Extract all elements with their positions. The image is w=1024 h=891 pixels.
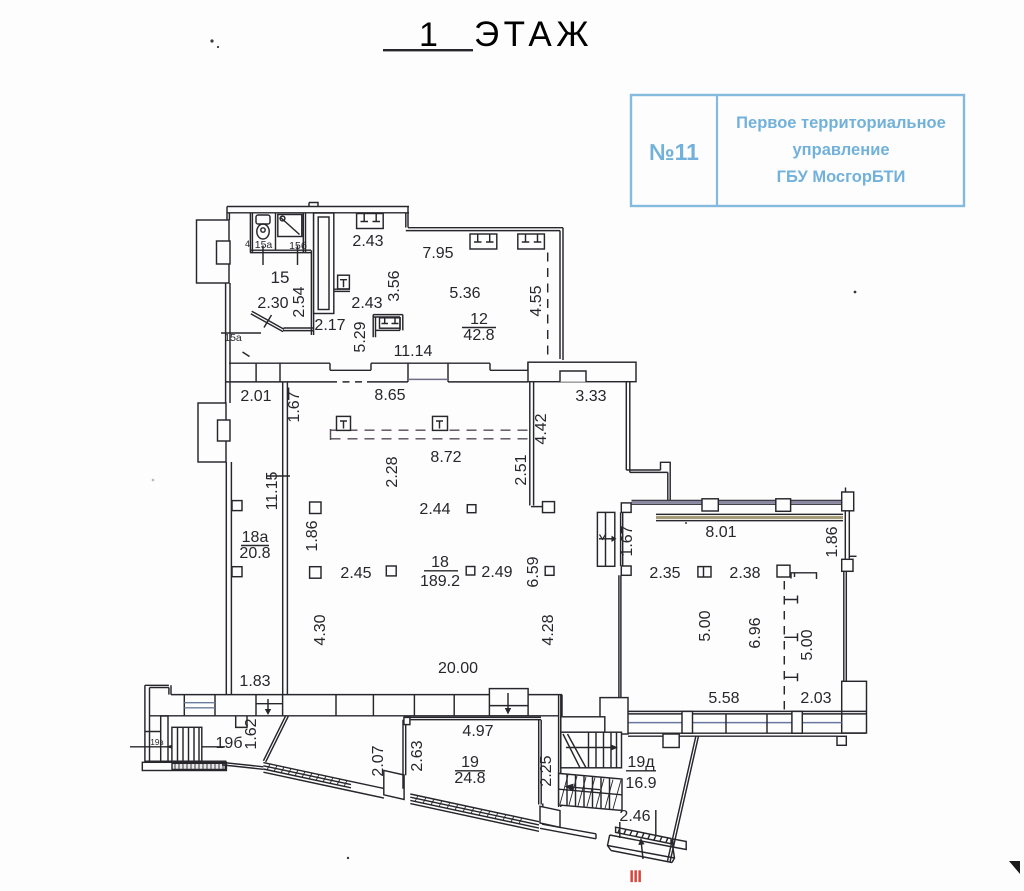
- svg-text:2.03: 2.03: [800, 690, 831, 707]
- svg-text:2.49: 2.49: [481, 564, 512, 581]
- svg-text:16.9: 16.9: [625, 775, 656, 792]
- svg-text:ЭТАЖ: ЭТАЖ: [474, 15, 593, 54]
- svg-text:1.67: 1.67: [619, 525, 636, 556]
- svg-text:4.28: 4.28: [540, 614, 557, 645]
- svg-text:2.38: 2.38: [729, 565, 760, 582]
- svg-text:8.01: 8.01: [705, 524, 736, 541]
- svg-text:11.15: 11.15: [264, 471, 281, 510]
- svg-text:1.86: 1.86: [304, 520, 321, 551]
- svg-text:4.97: 4.97: [462, 723, 493, 740]
- svg-text:2.43: 2.43: [352, 233, 383, 250]
- svg-text:2.01: 2.01: [240, 388, 271, 405]
- svg-text:2.43: 2.43: [351, 295, 382, 312]
- svg-text:20.8: 20.8: [239, 545, 270, 562]
- svg-text:5.29: 5.29: [352, 321, 369, 352]
- svg-text:8.72: 8.72: [430, 449, 461, 466]
- svg-text:15: 15: [271, 268, 290, 287]
- svg-text:5.00: 5.00: [697, 610, 714, 641]
- svg-text:5.00: 5.00: [799, 629, 816, 660]
- svg-text:2.07: 2.07: [370, 745, 387, 776]
- svg-text:19в: 19в: [150, 738, 163, 747]
- svg-text:4.30: 4.30: [312, 614, 329, 645]
- svg-text:24.8: 24.8: [454, 770, 485, 787]
- svg-text:4.42: 4.42: [533, 413, 550, 444]
- svg-text:2.54: 2.54: [291, 286, 308, 317]
- svg-text:№11: №11: [649, 139, 699, 165]
- svg-text:5.36: 5.36: [449, 285, 480, 302]
- svg-text:1.83: 1.83: [239, 673, 270, 690]
- svg-text:8.65: 8.65: [374, 387, 405, 404]
- svg-text:ГБУ МосгорБТИ: ГБУ МосгорБТИ: [777, 168, 906, 186]
- svg-text:42.8: 42.8: [463, 327, 494, 344]
- svg-text:1.62: 1.62: [243, 718, 260, 749]
- svg-text:2.51: 2.51: [513, 454, 530, 485]
- svg-text:18: 18: [431, 554, 449, 571]
- svg-text:11.14: 11.14: [394, 343, 433, 360]
- svg-text:18а: 18а: [242, 529, 269, 546]
- svg-text:2.44: 2.44: [419, 501, 450, 518]
- svg-text:2.30: 2.30: [257, 295, 288, 312]
- svg-text:3.56: 3.56: [386, 270, 403, 301]
- svg-text:6.96: 6.96: [747, 617, 764, 648]
- svg-text:2.25: 2.25: [538, 755, 555, 786]
- svg-text:4: 4: [245, 239, 250, 249]
- svg-text:2.28: 2.28: [384, 456, 401, 487]
- svg-text:7.95: 7.95: [422, 245, 453, 262]
- svg-text:2.63: 2.63: [409, 740, 426, 771]
- svg-text:2.17: 2.17: [314, 317, 345, 334]
- svg-text:3.33: 3.33: [575, 388, 606, 405]
- svg-text:5.58: 5.58: [708, 690, 739, 707]
- svg-text:15б: 15б: [289, 240, 307, 252]
- svg-text:1.67: 1.67: [286, 391, 303, 422]
- svg-text:1: 1: [419, 16, 439, 54]
- svg-text:4.55: 4.55: [528, 285, 545, 316]
- svg-text:Первое территориальное: Первое территориальное: [736, 114, 946, 132]
- svg-text:15а: 15а: [255, 239, 273, 251]
- svg-text:2.46: 2.46: [619, 808, 650, 825]
- svg-text:управление: управление: [792, 141, 889, 159]
- svg-text:2.45: 2.45: [340, 565, 371, 582]
- svg-text:19: 19: [461, 754, 479, 771]
- svg-text:20.00: 20.00: [438, 660, 478, 677]
- svg-text:2.35: 2.35: [649, 565, 680, 582]
- svg-text:189.2: 189.2: [420, 573, 460, 590]
- svg-text:19б: 19б: [216, 735, 243, 752]
- svg-text:1.86: 1.86: [824, 526, 841, 557]
- svg-text:6.59: 6.59: [525, 556, 542, 587]
- svg-text:15а: 15а: [224, 332, 242, 344]
- svg-text:19д: 19д: [627, 754, 655, 771]
- svg-text:12: 12: [470, 311, 488, 328]
